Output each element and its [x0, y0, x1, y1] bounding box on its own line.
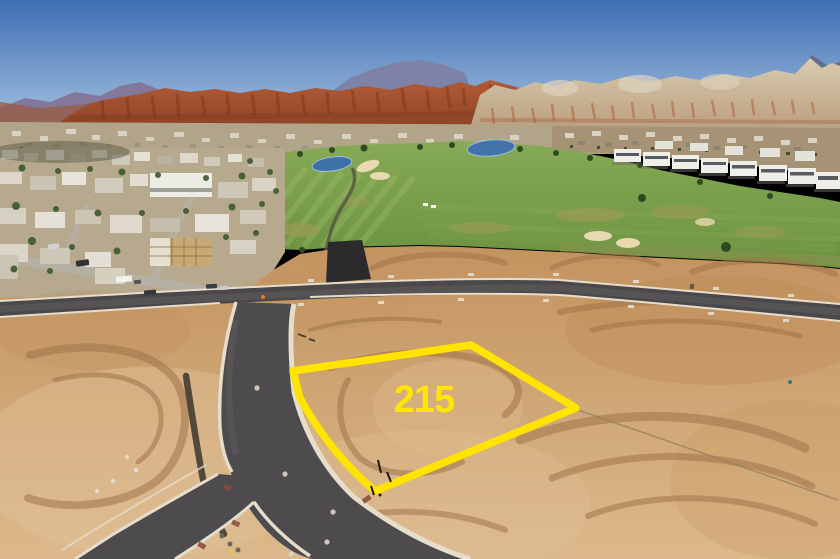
mesa-light-patch [542, 80, 578, 96]
sand-bunker [584, 231, 612, 241]
sand-bunker [370, 172, 390, 180]
rough-patch [555, 208, 625, 222]
rough-patch [650, 205, 710, 219]
utility-marker [788, 380, 792, 384]
rough-patch [280, 223, 320, 237]
trailer [134, 280, 141, 285]
new-asphalt-patch [326, 240, 371, 283]
house-under-construction [150, 238, 212, 266]
mesa-base-band [480, 120, 840, 122]
residential-area [0, 141, 285, 300]
mesa-light-patch [700, 74, 740, 90]
rough-patch [450, 222, 510, 234]
aerial-photo-lot-215: 215 [0, 0, 840, 559]
rough-patch [734, 226, 786, 238]
golf-cart [431, 205, 436, 208]
traffic-cone [261, 295, 265, 299]
sand-bunker [695, 218, 715, 226]
trash-bin [690, 284, 695, 290]
car-dark [206, 284, 217, 289]
car-silver [219, 286, 228, 290]
golf-cart [423, 203, 428, 206]
mesa-light-patch [618, 75, 662, 93]
car-dark [144, 289, 156, 295]
aerial-photo: 215 [0, 0, 840, 559]
survey-stake-dot [379, 494, 382, 497]
lot-number-label: 215 [394, 379, 455, 421]
sand-bunker [616, 238, 640, 248]
